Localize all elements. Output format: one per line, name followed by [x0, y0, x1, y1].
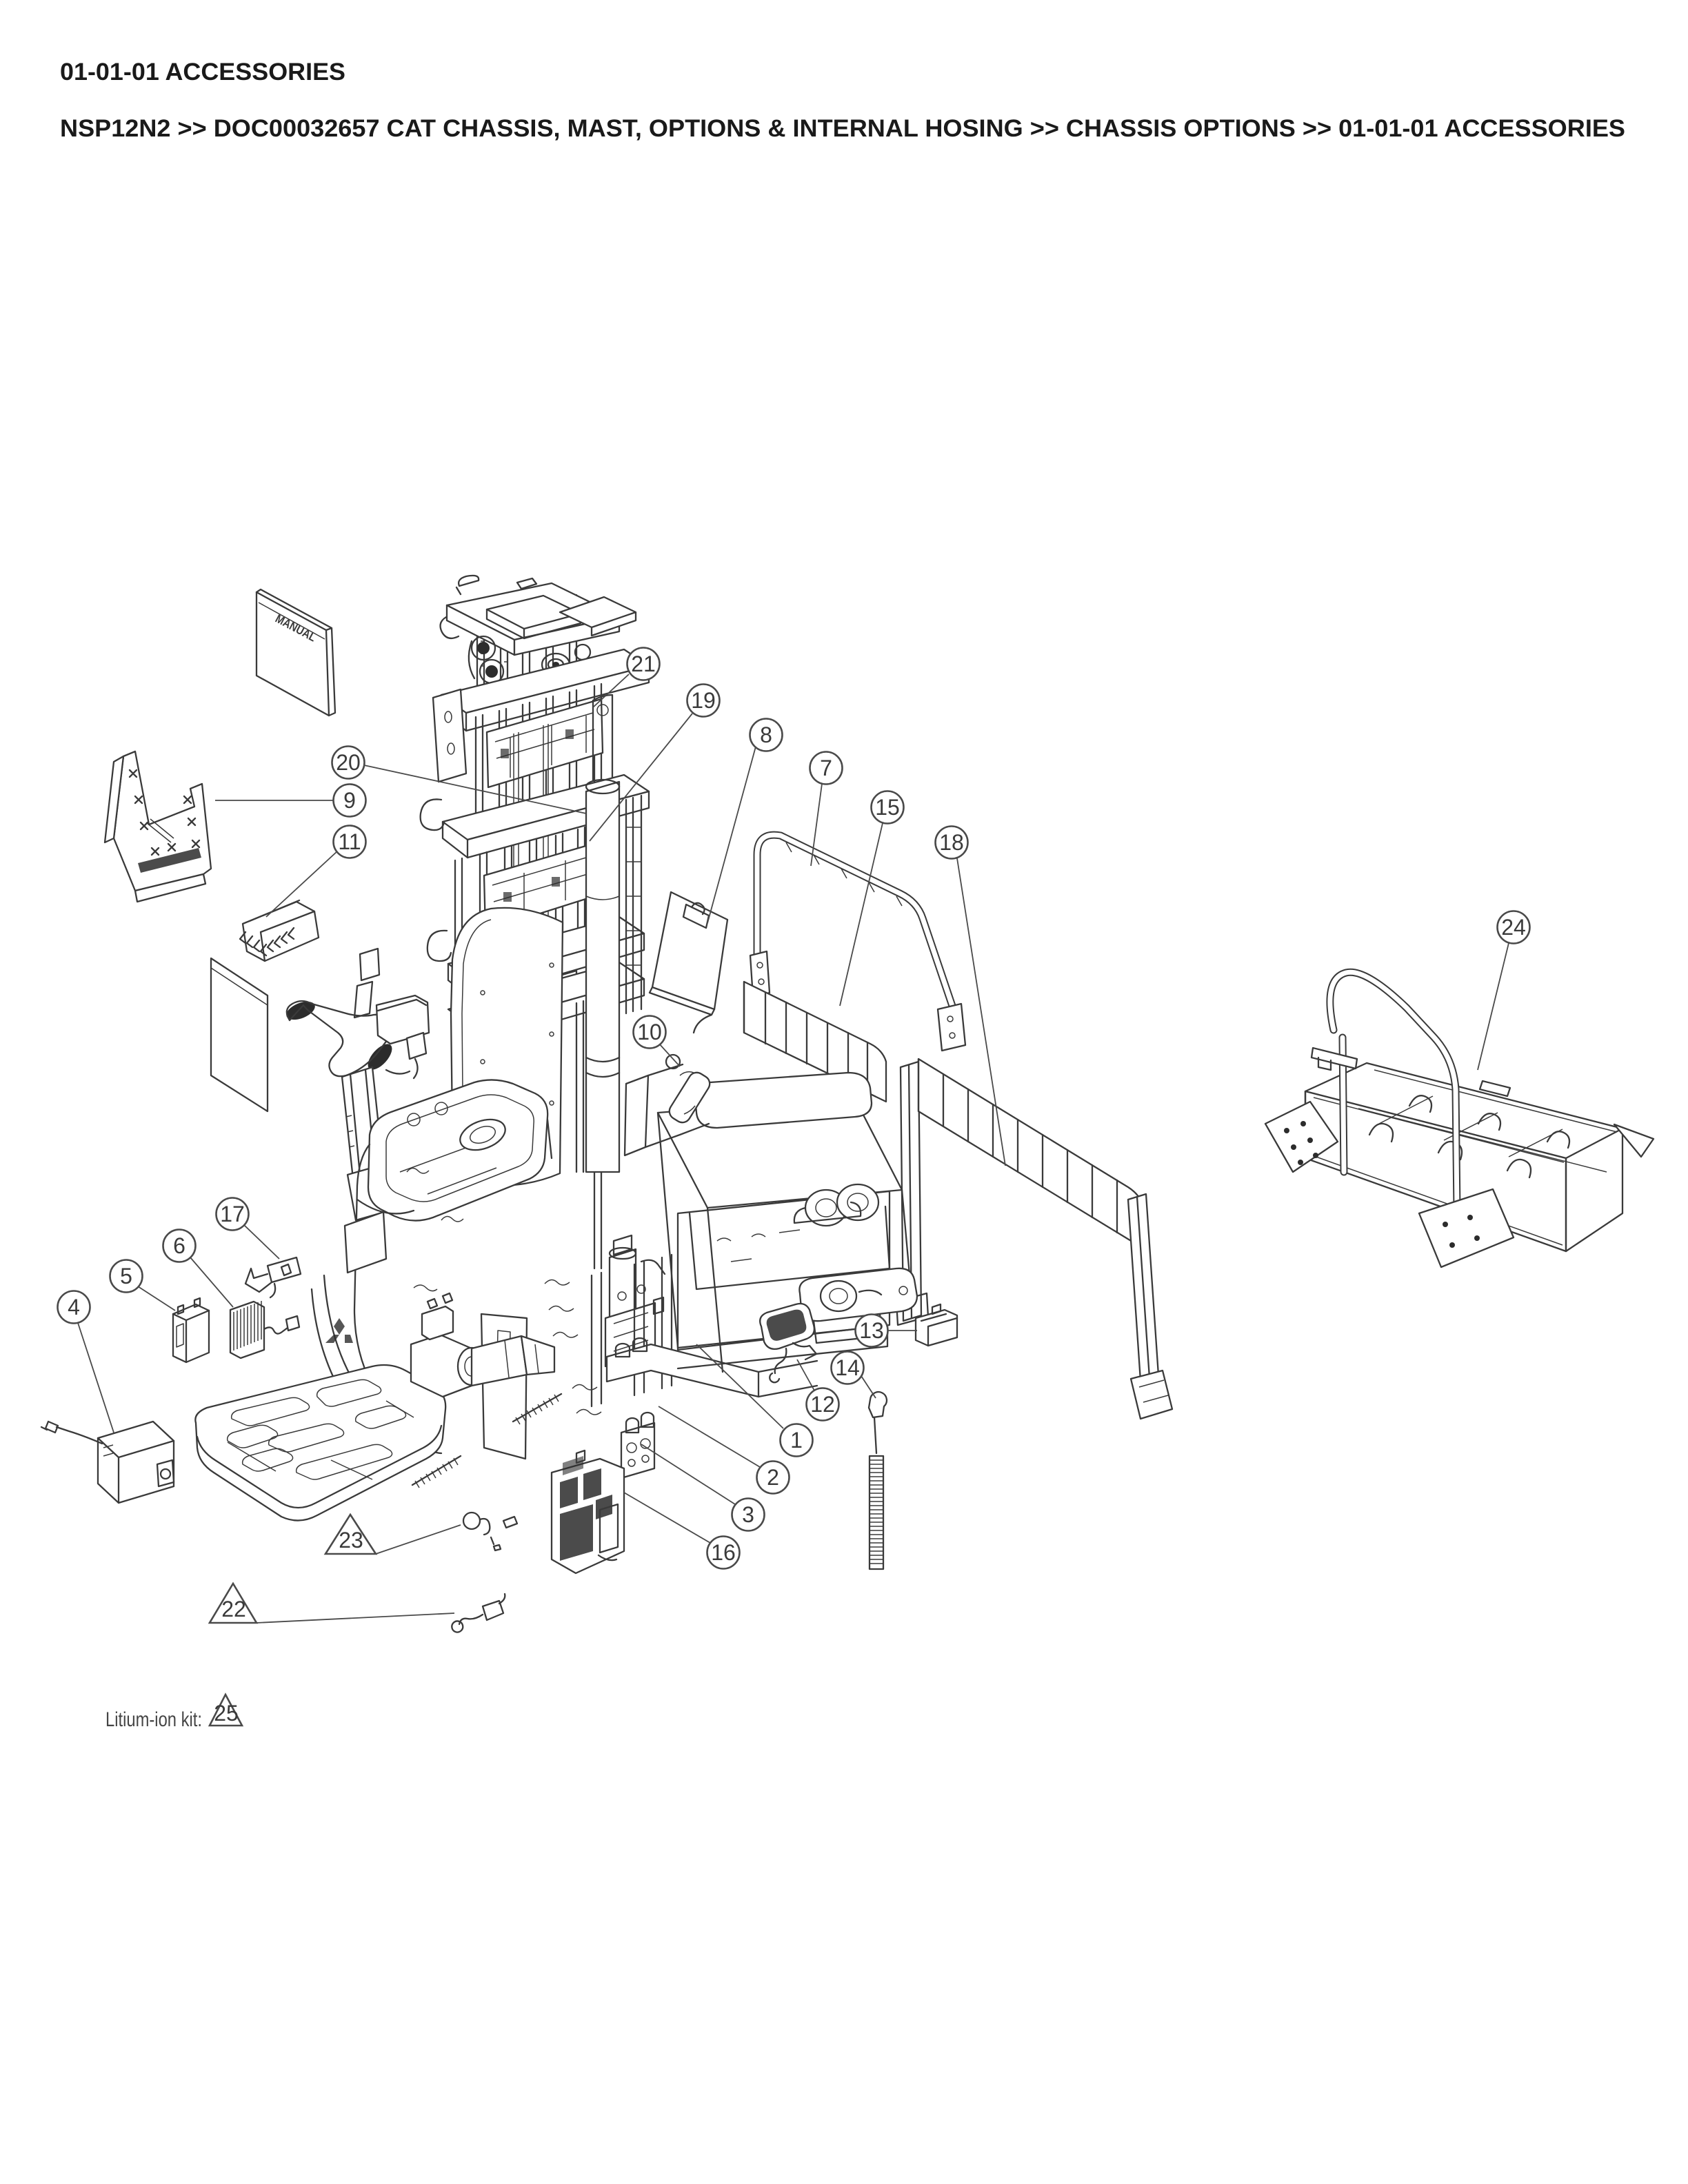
svg-text:8: 8	[760, 722, 772, 747]
svg-text:11: 11	[338, 829, 361, 854]
svg-text:2: 2	[767, 1465, 779, 1490]
svg-text:6: 6	[173, 1233, 185, 1258]
svg-text:12: 12	[810, 1392, 835, 1417]
svg-text:NSP12N2 >> DOC00032657 CAT CHA: NSP12N2 >> DOC00032657 CAT CHASSIS, MAST…	[60, 115, 1625, 142]
svg-text:18: 18	[939, 830, 964, 855]
svg-text:17: 17	[220, 1202, 245, 1226]
svg-text:1: 1	[790, 1428, 803, 1453]
svg-text:5: 5	[120, 1264, 132, 1288]
svg-text:14: 14	[835, 1355, 860, 1380]
svg-text:4: 4	[68, 1295, 80, 1319]
svg-text:21: 21	[631, 651, 656, 676]
svg-text:19: 19	[691, 688, 716, 713]
svg-text:25: 25	[214, 1701, 239, 1726]
svg-text:3: 3	[742, 1502, 754, 1527]
svg-text:9: 9	[343, 788, 356, 813]
svg-text:23: 23	[339, 1528, 363, 1553]
svg-text:16: 16	[711, 1540, 736, 1565]
svg-text:24: 24	[1501, 915, 1526, 940]
svg-text:22: 22	[221, 1597, 246, 1621]
svg-text:15: 15	[875, 795, 900, 820]
svg-text:20: 20	[336, 750, 361, 775]
svg-text:13: 13	[859, 1318, 884, 1343]
svg-text:7: 7	[820, 756, 832, 780]
svg-text:01-01-01 ACCESSORIES: 01-01-01 ACCESSORIES	[60, 59, 345, 85]
svg-text:Litium-ion kit:: Litium-ion kit:	[105, 1708, 202, 1731]
svg-text:10: 10	[637, 1020, 662, 1044]
